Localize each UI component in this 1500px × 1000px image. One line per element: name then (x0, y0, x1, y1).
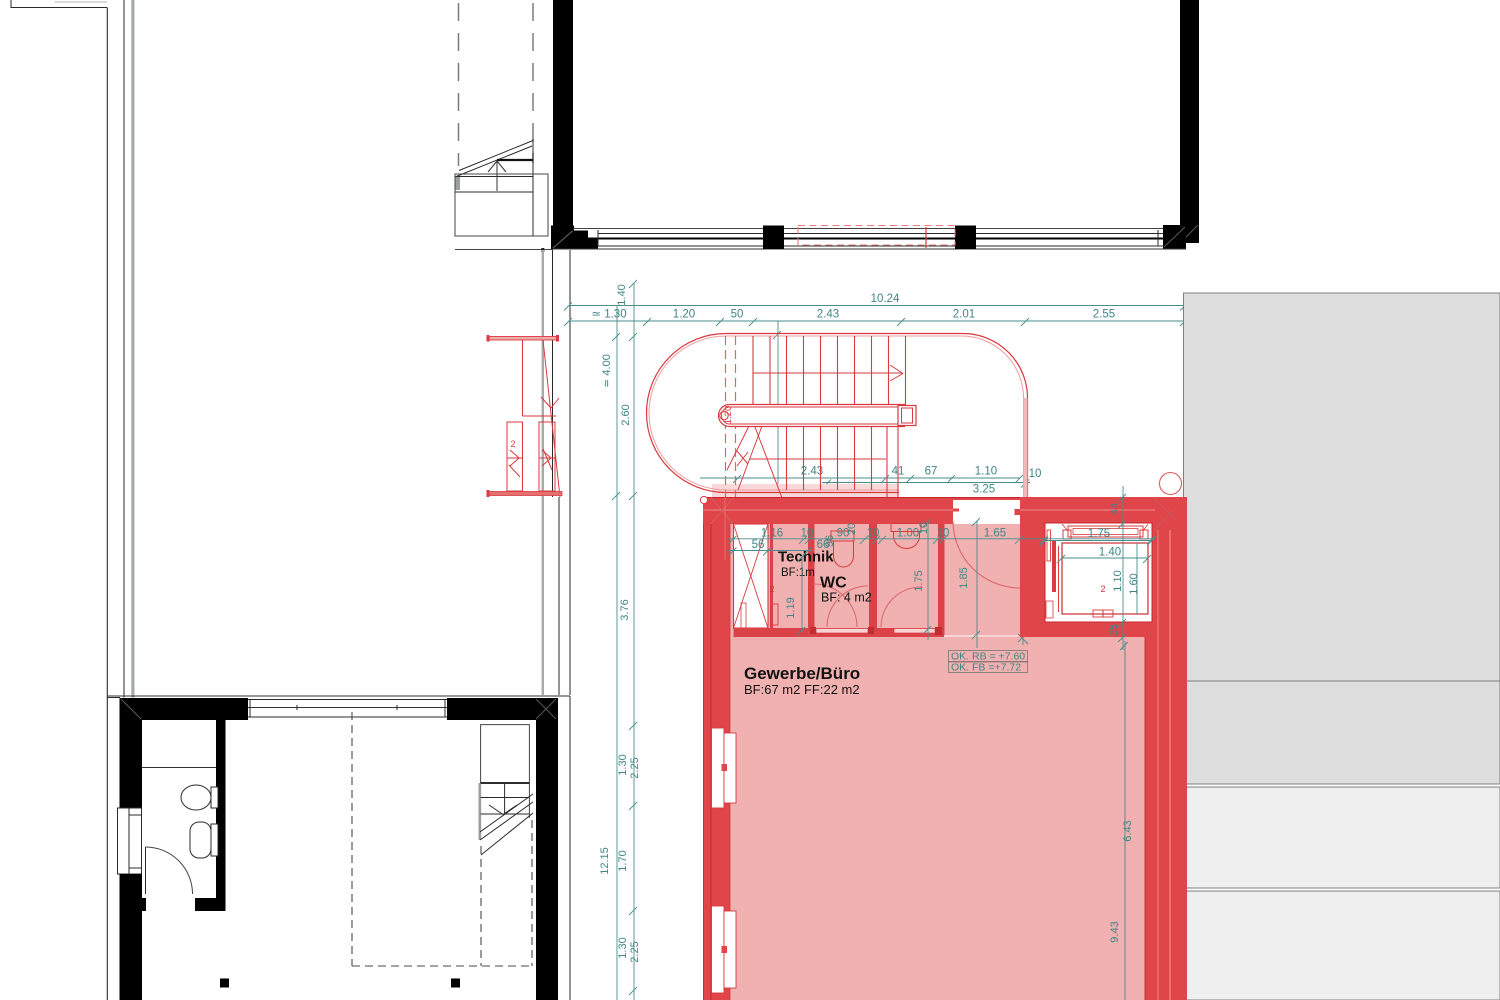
svg-text:1.30: 1.30 (617, 754, 629, 775)
svg-text:20: 20 (846, 523, 858, 535)
svg-text:50: 50 (731, 309, 744, 321)
svg-text:3.76: 3.76 (619, 599, 631, 620)
svg-text:25: 25 (1108, 624, 1120, 636)
svg-text:2: 2 (510, 439, 515, 449)
svg-text:9.43: 9.43 (1109, 921, 1121, 942)
svg-text:BF:67 m2 FF:22 m2: BF:67 m2 FF:22 m2 (744, 682, 860, 697)
svg-text:1.60: 1.60 (1128, 573, 1140, 594)
svg-text:2.55: 2.55 (1093, 309, 1115, 321)
svg-text:3.25: 3.25 (973, 484, 995, 496)
svg-text:1.30: 1.30 (617, 937, 629, 958)
svg-text:10: 10 (801, 528, 814, 540)
svg-text:1.75: 1.75 (1088, 528, 1110, 540)
svg-text:44: 44 (1109, 503, 1121, 515)
svg-text:Technik: Technik (778, 549, 834, 566)
svg-text:2.01: 2.01 (953, 309, 975, 321)
svg-text:1.70: 1.70 (617, 850, 629, 871)
svg-text:1.75: 1.75 (913, 570, 925, 591)
svg-text:1.10: 1.10 (1112, 570, 1124, 591)
svg-text:12.15: 12.15 (599, 847, 611, 875)
svg-text:1.16: 1.16 (761, 528, 783, 540)
svg-text:Gewerbe/Büro: Gewerbe/Büro (744, 664, 860, 683)
svg-text:≃ 1.30: ≃ 1.30 (591, 309, 626, 321)
svg-text:1.65: 1.65 (984, 528, 1006, 540)
svg-text:≃ 4.00: ≃ 4.00 (601, 354, 613, 388)
svg-text:2.60: 2.60 (620, 404, 632, 425)
svg-text:2.43: 2.43 (801, 466, 823, 478)
svg-text:2: 2 (769, 584, 774, 594)
svg-text:10.24: 10.24 (871, 293, 900, 305)
svg-text:1.19: 1.19 (785, 597, 797, 618)
svg-text:2: 2 (1100, 584, 1105, 594)
svg-text:10: 10 (937, 528, 950, 540)
svg-text:BF: 4 m2: BF: 4 m2 (821, 591, 872, 605)
svg-text:2.25: 2.25 (629, 757, 641, 778)
svg-text:1.20: 1.20 (723, 406, 734, 425)
svg-text:56: 56 (752, 539, 765, 551)
svg-text:1.85: 1.85 (958, 567, 970, 588)
svg-text:1.20: 1.20 (673, 309, 695, 321)
svg-text:96: 96 (824, 535, 836, 547)
svg-text:10: 10 (867, 528, 880, 540)
svg-text:2.25: 2.25 (629, 941, 641, 962)
svg-text:2.43: 2.43 (817, 309, 839, 321)
svg-text:1.00: 1.00 (897, 528, 919, 540)
svg-text:OK. FB =+7.72: OK. FB =+7.72 (951, 662, 1021, 674)
svg-text:1.40: 1.40 (1099, 547, 1121, 559)
svg-text:1.40: 1.40 (616, 284, 628, 305)
svg-text:67: 67 (925, 466, 938, 478)
svg-text:10: 10 (1029, 468, 1042, 480)
svg-text:WC: WC (820, 575, 847, 592)
svg-text:1.10: 1.10 (975, 466, 997, 478)
svg-text:BF:1m: BF:1m (781, 567, 815, 579)
svg-text:6.43: 6.43 (1122, 820, 1134, 841)
